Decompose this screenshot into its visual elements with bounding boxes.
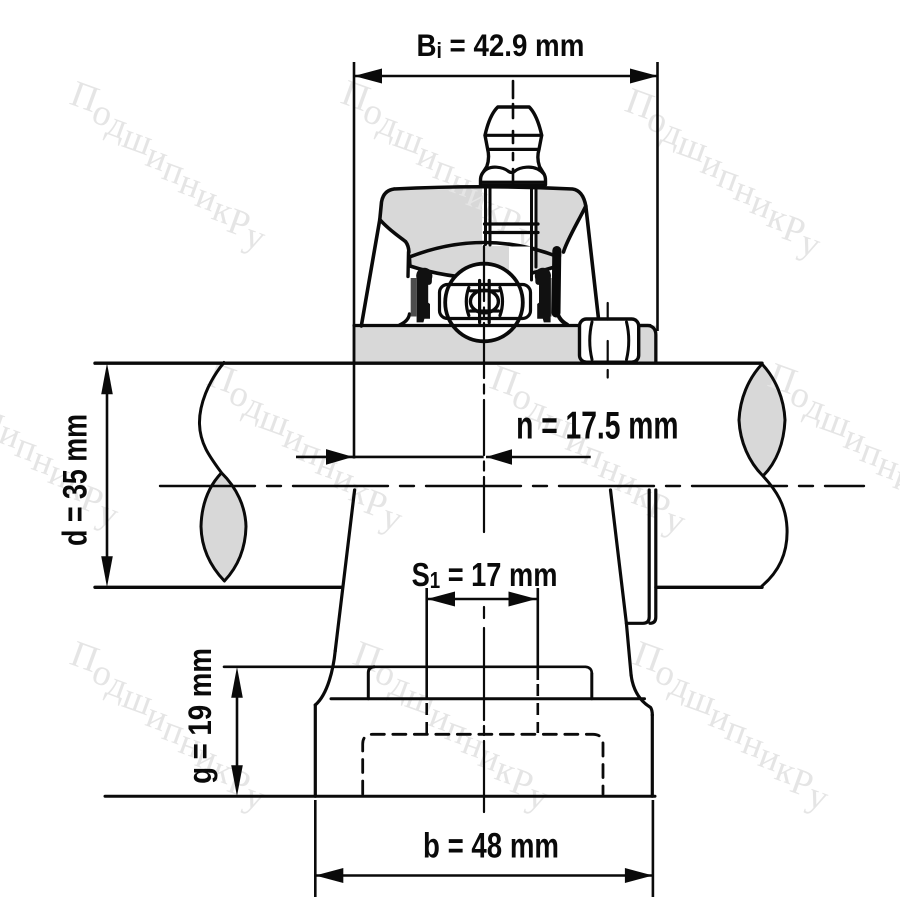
svg-text:n = 17.5 mm: n = 17.5 mm — [516, 404, 678, 448]
svg-text:Bi = 42.9 mm: Bi = 42.9 mm — [416, 28, 584, 63]
svg-text:d = 35 mm: d = 35 mm — [57, 414, 95, 546]
svg-text:g = 19 mm: g = 19 mm — [183, 648, 219, 784]
svg-text:b = 48 mm: b = 48 mm — [423, 825, 559, 865]
